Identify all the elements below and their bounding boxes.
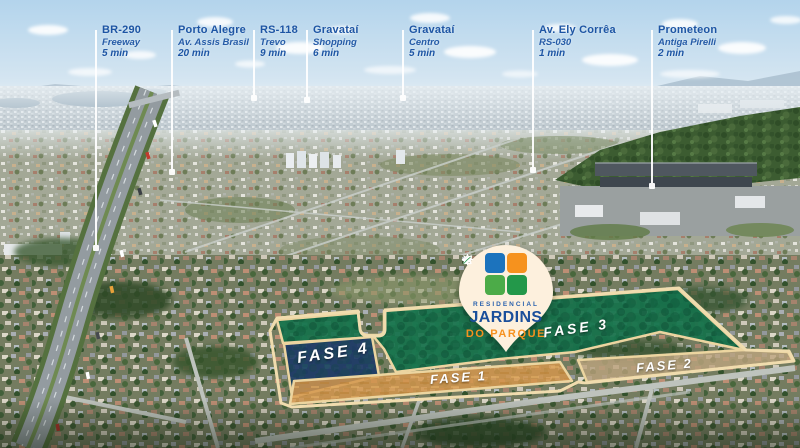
location-time: 20 min (178, 49, 249, 60)
location-time: 2 min (658, 49, 717, 60)
location-title: Porto Alegre (178, 25, 249, 37)
location-title: Gravataí (313, 25, 359, 37)
location-title: Gravataí (409, 25, 455, 37)
location-subtitle: Av. Assis Brasil (178, 38, 249, 48)
location-label-br290: BR-290 Freeway 5 min (102, 25, 141, 60)
aerial-photo-scene (0, 0, 800, 448)
bird-icon (485, 253, 505, 273)
pin-tagline: RESIDENCIAL (473, 301, 539, 308)
location-label-gravatai-shopping: Gravataí Shopping 6 min (313, 25, 359, 60)
pin-brand-subname: DO PARQUE (466, 328, 546, 340)
location-subtitle: Freeway (102, 38, 141, 48)
location-time: 6 min (313, 49, 359, 60)
location-label-prometeon: Prometeon Antiga Pirelli 2 min (658, 25, 717, 60)
house-icon (485, 275, 505, 295)
pin-icon-grid (485, 253, 527, 295)
bottom-shadow (0, 398, 800, 448)
location-time: 1 min (539, 49, 616, 60)
location-subtitle: Antiga Pirelli (658, 38, 717, 48)
pin-brand-name: JARDINS (469, 309, 542, 327)
location-label-porto-alegre: Porto Alegre Av. Assis Brasil 20 min (178, 25, 249, 60)
aerial-site-map: BR-290 Freeway 5 min Porto Alegre Av. As… (0, 0, 800, 448)
pin-logo: RESIDENCIAL JARDINS DO PARQUE (461, 253, 551, 340)
location-time: 5 min (102, 49, 141, 60)
location-title: RS-118 (260, 25, 298, 37)
leaf-icon (507, 275, 527, 295)
location-label-av-ely-correa: Av. Ely Corrêa RS-030 1 min (539, 25, 616, 60)
sun-icon (507, 253, 527, 273)
location-title: Av. Ely Corrêa (539, 25, 616, 37)
location-subtitle: Trevo (260, 38, 298, 48)
location-title: BR-290 (102, 25, 141, 37)
location-label-gravatai-centro: Gravataí Centro 5 min (409, 25, 455, 60)
location-label-rs118: RS-118 Trevo 9 min (260, 25, 298, 60)
factory-roof (595, 163, 757, 176)
location-time: 5 min (409, 49, 455, 60)
location-title: Prometeon (658, 25, 717, 37)
location-subtitle: Shopping (313, 38, 359, 48)
location-subtitle: RS-030 (539, 38, 616, 48)
location-subtitle: Centro (409, 38, 455, 48)
location-time: 9 min (260, 49, 298, 60)
